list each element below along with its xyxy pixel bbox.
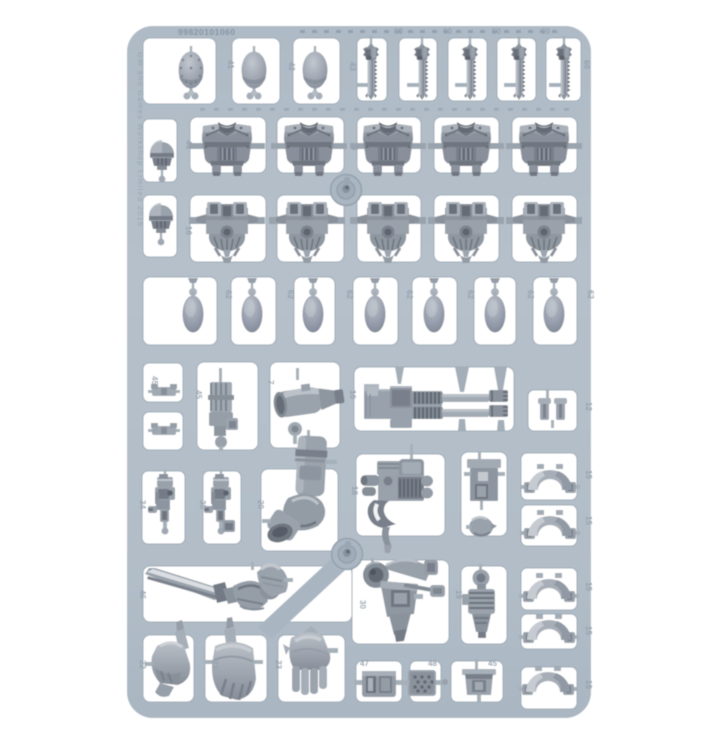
svg-text:62: 62 bbox=[224, 290, 233, 299]
svg-text:5: 5 bbox=[350, 146, 359, 151]
svg-text:18: 18 bbox=[350, 486, 359, 495]
svg-text:20: 20 bbox=[256, 500, 265, 509]
svg-text:44: 44 bbox=[184, 140, 193, 149]
svg-text:12: 12 bbox=[584, 402, 593, 411]
svg-text:7: 7 bbox=[266, 380, 275, 385]
svg-text:60: 60 bbox=[443, 27, 452, 36]
svg-text:15: 15 bbox=[584, 680, 593, 689]
svg-text:22: 22 bbox=[138, 660, 147, 669]
svg-text:15: 15 bbox=[584, 582, 593, 591]
svg-text:35: 35 bbox=[198, 500, 207, 509]
svg-text:42: 42 bbox=[287, 62, 296, 71]
svg-text:10: 10 bbox=[348, 390, 357, 399]
svg-text:62: 62 bbox=[466, 290, 475, 299]
svg-text:19: 19 bbox=[454, 590, 463, 599]
svg-text:60: 60 bbox=[394, 27, 403, 36]
svg-text:60: 60 bbox=[582, 60, 591, 69]
svg-text:23: 23 bbox=[274, 660, 283, 669]
svg-text:62: 62 bbox=[526, 290, 535, 299]
svg-text:99820101060: 99820101060 bbox=[178, 27, 236, 37]
svg-text:62: 62 bbox=[286, 290, 295, 299]
svg-text:62: 62 bbox=[586, 290, 595, 299]
svg-text:60: 60 bbox=[541, 27, 550, 36]
svg-text:15: 15 bbox=[584, 516, 593, 525]
svg-text:48: 48 bbox=[428, 659, 437, 668]
svg-text:45: 45 bbox=[488, 659, 497, 668]
svg-text:15: 15 bbox=[584, 626, 593, 635]
svg-text:23: 23 bbox=[210, 660, 219, 669]
svg-text:34: 34 bbox=[138, 500, 147, 509]
svg-text:50: 50 bbox=[492, 27, 501, 36]
svg-text:46: 46 bbox=[138, 590, 147, 599]
svg-text:45: 45 bbox=[150, 376, 159, 385]
svg-text:45: 45 bbox=[194, 390, 203, 399]
svg-text:47: 47 bbox=[360, 659, 369, 668]
svg-text:15: 15 bbox=[584, 470, 593, 479]
svg-text:41: 41 bbox=[226, 60, 235, 69]
svg-text:43: 43 bbox=[348, 62, 357, 71]
svg-text:16: 16 bbox=[184, 226, 193, 235]
svg-text:62: 62 bbox=[405, 290, 414, 299]
svg-text:62: 62 bbox=[345, 290, 354, 299]
svg-text:30: 30 bbox=[358, 600, 367, 609]
svg-text:GW and Games Workshop Limited: GW and Games Workshop Limited 2016 bbox=[136, 52, 145, 227]
svg-text:55: 55 bbox=[150, 424, 159, 433]
